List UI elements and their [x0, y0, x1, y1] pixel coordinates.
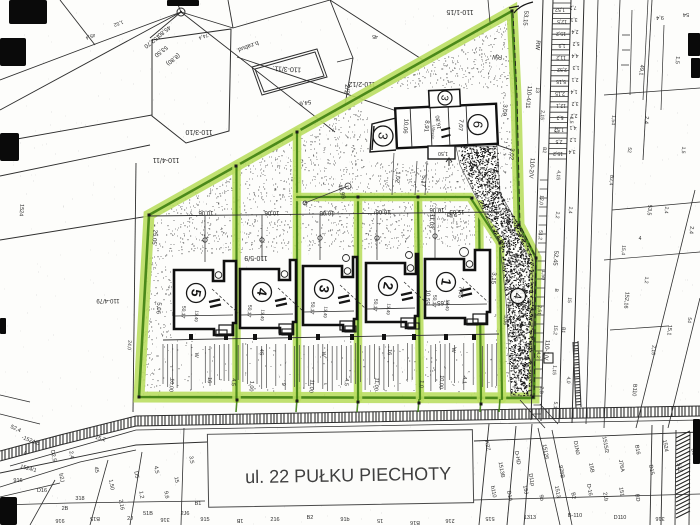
- svg-text:B2,4: B2,4: [608, 175, 615, 186]
- svg-text:4: 4: [639, 236, 642, 242]
- svg-text:5,2: 5,2: [572, 40, 579, 46]
- svg-text:16: 16: [386, 349, 393, 356]
- svg-text:2,15: 2,15: [555, 90, 565, 96]
- svg-text:1,00: 1,00: [248, 380, 255, 391]
- svg-text:B15: B15: [90, 515, 100, 521]
- svg-text:13,49: 13,49: [259, 309, 265, 321]
- svg-text:4: 4: [23, 451, 26, 457]
- svg-text:1313: 1313: [524, 515, 536, 521]
- svg-text:11,2: 11,2: [556, 54, 566, 60]
- svg-text:4,2: 4,2: [535, 351, 542, 359]
- svg-text:10,06: 10,06: [375, 208, 391, 214]
- svg-text:1,54: 1,54: [610, 115, 617, 125]
- svg-text:1,02: 1,02: [393, 171, 400, 184]
- svg-text:9: 9: [280, 382, 286, 386]
- svg-text:2,4: 2,4: [571, 28, 578, 34]
- svg-text:4,4: 4,4: [571, 52, 578, 58]
- svg-text:1,50: 1,50: [438, 150, 448, 156]
- svg-text:10,06: 10,06: [198, 209, 214, 215]
- svg-text:915: 915: [200, 517, 209, 523]
- svg-text:B2: B2: [569, 492, 576, 500]
- svg-text:54: 54: [683, 11, 689, 17]
- svg-text:2,51: 2,51: [536, 305, 543, 315]
- svg-text:7,65: 7,65: [456, 286, 463, 299]
- svg-text:3,2: 3,2: [571, 100, 578, 106]
- svg-text:4S: 4S: [258, 348, 265, 356]
- svg-text:1,52: 1,52: [554, 126, 564, 132]
- svg-text:13: 13: [534, 87, 540, 93]
- svg-text:2,4: 2,4: [663, 206, 670, 214]
- svg-text:52: 52: [626, 147, 632, 153]
- svg-text:4,0: 4,0: [565, 376, 572, 384]
- svg-text:4,15: 4,15: [555, 170, 562, 180]
- svg-text:13,49: 13,49: [385, 303, 391, 315]
- svg-text:51,2: 51,2: [537, 230, 544, 240]
- svg-text:13,49: 13,49: [322, 306, 328, 318]
- svg-text:45: 45: [92, 466, 99, 473]
- svg-text:4,5: 4,5: [230, 378, 237, 386]
- svg-text:7,07: 7,07: [456, 119, 463, 132]
- svg-text:10,06: 10,06: [264, 209, 280, 215]
- svg-text:3,15: 3,15: [489, 272, 496, 285]
- svg-text:4,1: 4,1: [569, 124, 576, 130]
- svg-text:1,2: 1,2: [569, 136, 576, 142]
- svg-text:5,2: 5,2: [556, 114, 563, 120]
- svg-text:50,17: 50,17: [308, 302, 315, 315]
- svg-text:15,2: 15,2: [556, 30, 566, 36]
- svg-text:2,2: 2,2: [570, 112, 577, 118]
- svg-text:1,9: 1,9: [558, 42, 565, 48]
- svg-text:1524: 1524: [17, 204, 24, 217]
- svg-text:15,2: 15,2: [552, 325, 559, 335]
- svg-text:B1: B1: [560, 327, 567, 334]
- svg-text:515: 515: [485, 515, 494, 521]
- svg-text:2,52: 2,52: [557, 66, 567, 72]
- svg-text:110-5/9: 110-5/9: [244, 254, 267, 261]
- svg-text:2J6: 2J6: [181, 511, 190, 517]
- svg-text:10,00: 10,00: [437, 375, 444, 389]
- svg-text:11,00: 11,00: [372, 377, 379, 391]
- svg-text:50,17: 50,17: [245, 305, 252, 318]
- svg-text:1,52: 1,52: [555, 6, 565, 12]
- svg-text:316: 316: [655, 515, 664, 521]
- svg-text:54: 54: [686, 317, 692, 323]
- svg-text:3,4: 3,4: [568, 148, 575, 154]
- svg-text:3,06: 3,06: [502, 315, 509, 325]
- svg-text:1,5: 1,5: [680, 146, 687, 154]
- svg-text:RW: RW: [534, 40, 541, 51]
- svg-text:10,06: 10,06: [429, 206, 445, 212]
- svg-text:2/2: 2/2: [343, 84, 351, 94]
- svg-text:8,91: 8,91: [422, 120, 429, 133]
- svg-text:3,02: 3,02: [507, 148, 514, 161]
- svg-text:15: 15: [377, 517, 383, 523]
- svg-text:1,65: 1,65: [437, 299, 449, 305]
- svg-text:316: 316: [160, 516, 169, 522]
- svg-text:12,0: 12,0: [538, 195, 545, 205]
- svg-text:2,15: 2,15: [539, 110, 546, 120]
- svg-text:1,5: 1,5: [674, 56, 681, 64]
- svg-text:5,06: 5,06: [154, 302, 161, 315]
- svg-text:5,17: 5,17: [419, 175, 426, 188]
- svg-text:2,4: 2,4: [688, 226, 695, 234]
- svg-text:49,1: 49,1: [638, 64, 645, 75]
- svg-text:1B: 1B: [236, 517, 243, 523]
- svg-text:3,09: 3,09: [500, 104, 507, 117]
- svg-text:D110: D110: [614, 515, 627, 521]
- svg-text:D5: D5: [132, 471, 139, 479]
- svg-text:24,0: 24,0: [126, 340, 133, 350]
- svg-text:110-3/11.: 110-3/11.: [272, 64, 301, 72]
- svg-text:2,1: 2,1: [571, 76, 578, 82]
- svg-text:ul. 22 PUŁKU PIECHOTY: ul. 22 PUŁKU PIECHOTY: [245, 463, 451, 488]
- svg-text:B1: B1: [195, 501, 202, 507]
- svg-text:7,2: 7,2: [569, 4, 576, 10]
- svg-text:16: 16: [206, 377, 213, 384]
- svg-text:9,4: 9,4: [656, 14, 664, 20]
- svg-text:9b: 9b: [537, 494, 544, 501]
- svg-text:50,17: 50,17: [371, 299, 378, 312]
- svg-text:916: 916: [55, 517, 64, 523]
- svg-text:110-3/10: 110-3/10: [185, 128, 212, 135]
- svg-text:1,3: 1,3: [572, 64, 579, 70]
- svg-text:2,4: 2,4: [643, 116, 650, 124]
- svg-text:45: 45: [372, 33, 378, 39]
- svg-text:9,53: 9,53: [447, 211, 458, 217]
- svg-text:1,4: 1,4: [570, 88, 577, 94]
- svg-text:110-4/11: 110-4/11: [153, 156, 180, 163]
- svg-text:50,17: 50,17: [179, 306, 186, 319]
- svg-text:4,5: 4,5: [343, 378, 350, 386]
- svg-text:91b: 91b: [340, 517, 349, 523]
- svg-text:B110: B110: [630, 384, 637, 397]
- svg-text:2,5: 2,5: [555, 138, 562, 144]
- svg-text:5,15: 5,15: [556, 78, 566, 84]
- svg-text:11,00: 11,00: [307, 379, 314, 393]
- svg-text:D16: D16: [37, 488, 47, 494]
- svg-text:2B: 2B: [62, 506, 69, 512]
- svg-text:2,B: 2,B: [538, 386, 545, 395]
- svg-text:12,1: 12,1: [556, 102, 566, 108]
- svg-text:1,2: 1,2: [643, 276, 650, 284]
- svg-text:216: 216: [270, 517, 279, 523]
- svg-text:B16: B16: [410, 519, 420, 525]
- svg-text:RW: RW: [492, 53, 502, 59]
- svg-text:4,1: 4,1: [461, 376, 468, 384]
- svg-text:110-1/15: 110-1/15: [446, 8, 473, 15]
- svg-text:10,00: 10,00: [167, 378, 174, 392]
- svg-text:B2: B2: [307, 515, 314, 521]
- svg-text:2J: 2J: [127, 516, 133, 522]
- svg-text:1,0: 1,0: [418, 380, 425, 388]
- svg-text:216: 216: [445, 517, 454, 523]
- svg-text:5,1: 5,1: [552, 401, 559, 409]
- svg-text:50,17: 50,17: [430, 295, 437, 308]
- svg-text:110-4/79: 110-4/79: [96, 297, 120, 303]
- svg-text:2,15: 2,15: [650, 345, 657, 355]
- svg-text:3,1: 3,1: [570, 16, 577, 22]
- svg-text:B2: B2: [541, 147, 548, 154]
- svg-text:15,4: 15,4: [620, 245, 627, 255]
- svg-text:10,06: 10,06: [319, 209, 335, 215]
- svg-text:51B: 51B: [143, 511, 153, 517]
- svg-text:1,50: 1,50: [540, 270, 547, 280]
- svg-text:318: 318: [75, 496, 84, 502]
- svg-text:13,49: 13,49: [193, 310, 199, 322]
- svg-text:53,5: 53,5: [646, 204, 653, 215]
- svg-text:2,2: 2,2: [554, 211, 561, 219]
- svg-text:916: 916: [13, 478, 22, 484]
- svg-text:15: 15: [172, 476, 179, 483]
- svg-text:15: 15: [566, 297, 572, 303]
- svg-text:2,4: 2,4: [567, 206, 574, 214]
- svg-text:1,15: 1,15: [551, 365, 558, 375]
- svg-text:15,2: 15,2: [553, 150, 563, 156]
- svg-text:12,5: 12,5: [557, 18, 567, 24]
